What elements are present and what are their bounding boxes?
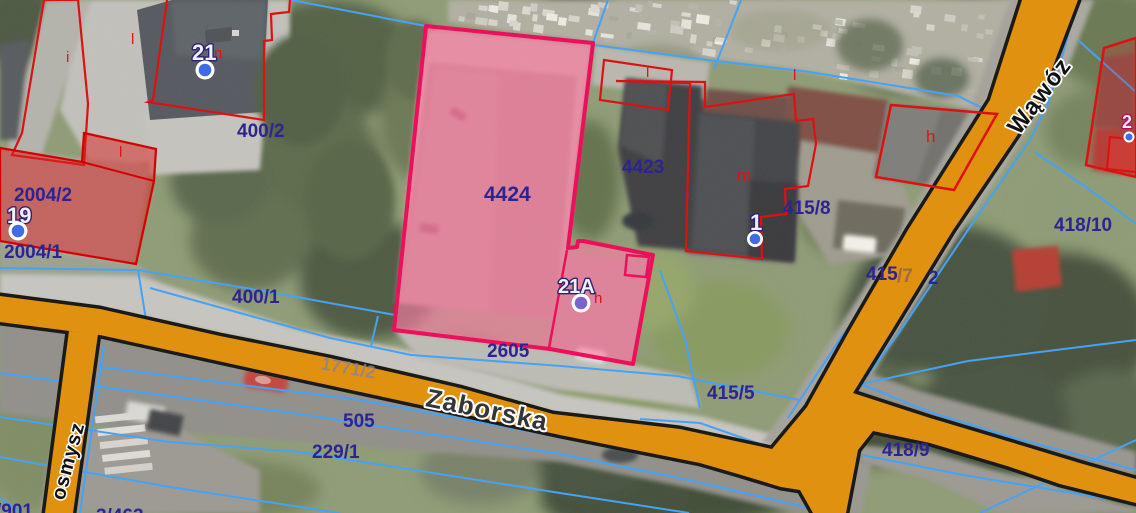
svg-text:4423: 4423 xyxy=(622,157,664,178)
svg-text:l: l xyxy=(119,144,122,161)
svg-text:i: i xyxy=(66,49,69,66)
svg-text:2605: 2605 xyxy=(487,341,530,362)
svg-text:415/8: 415/8 xyxy=(783,198,831,219)
svg-text:2: 2 xyxy=(928,268,939,289)
svg-text:21A: 21A xyxy=(558,276,595,298)
svg-text:418/10: 418/10 xyxy=(1054,215,1112,236)
svg-text:m: m xyxy=(737,166,751,185)
svg-text:400/1: 400/1 xyxy=(232,287,280,308)
svg-text:/7: /7 xyxy=(897,266,913,287)
svg-text:415: 415 xyxy=(866,264,898,285)
svg-text:505: 505 xyxy=(343,411,375,432)
svg-text:/901: /901 xyxy=(0,501,33,513)
svg-text:l: l xyxy=(646,64,649,81)
svg-text:2004/1: 2004/1 xyxy=(4,242,63,263)
svg-text:229/1: 229/1 xyxy=(312,442,360,463)
svg-text:400/2: 400/2 xyxy=(237,121,285,142)
svg-text:h: h xyxy=(594,290,602,307)
svg-text:l: l xyxy=(131,31,134,48)
svg-text:l: l xyxy=(793,67,796,84)
svg-text:4424: 4424 xyxy=(484,183,531,206)
svg-text:2: 2 xyxy=(1122,112,1132,132)
svg-text:3/463: 3/463 xyxy=(96,506,144,513)
svg-text:418/9: 418/9 xyxy=(882,440,930,461)
svg-text:415/5: 415/5 xyxy=(707,383,755,404)
svg-text:h: h xyxy=(926,127,935,146)
